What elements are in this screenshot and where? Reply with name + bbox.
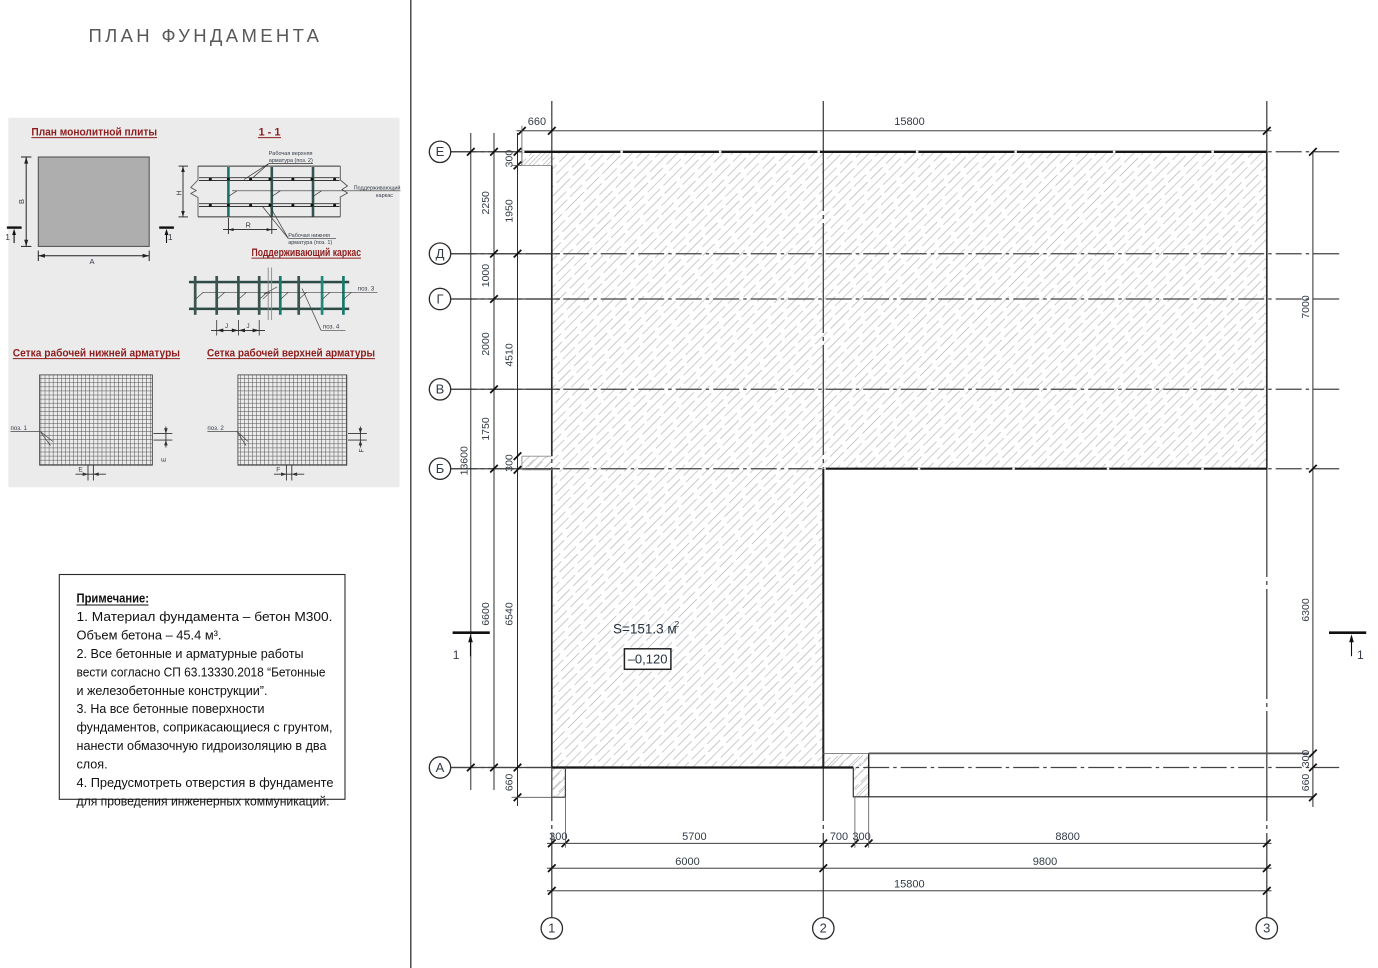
svg-text:15800: 15800 — [894, 116, 925, 128]
svg-text:1000: 1000 — [480, 264, 492, 288]
svg-text:J: J — [225, 323, 228, 330]
svg-text:700: 700 — [830, 831, 848, 843]
svg-text:1: 1 — [548, 921, 555, 936]
svg-text:1. Материал фундамента – бетон: 1. Материал фундамента – бетон М300. — [77, 610, 333, 624]
svg-text:1750: 1750 — [480, 417, 492, 441]
svg-text:H: H — [177, 190, 184, 195]
svg-text:15800: 15800 — [894, 879, 925, 891]
svg-text:2. Все бетонные и арматурные р: 2. Все бетонные и арматурные работы — [77, 647, 304, 661]
svg-text:2250: 2250 — [480, 191, 492, 215]
svg-text:1: 1 — [1357, 648, 1364, 662]
svg-text:Рабочая нижняя: Рабочая нижняя — [288, 233, 330, 239]
svg-text:F: F — [276, 467, 280, 474]
svg-text:1: 1 — [168, 232, 173, 242]
svg-text:вести согласно СП 63.13330.201: вести согласно СП 63.13330.2018 “Бетонны… — [77, 665, 326, 679]
svg-text:каркас: каркас — [376, 193, 393, 199]
svg-text:300: 300 — [504, 454, 516, 472]
svg-text:А: А — [436, 760, 445, 775]
svg-text:300: 300 — [1300, 750, 1312, 768]
svg-text:F: F — [359, 448, 366, 452]
svg-text:фундаментов, соприкасающиеся с: фундаментов, соприкасающиеся с грунтом, — [77, 721, 333, 735]
svg-text:S=151.3 м: S=151.3 м — [613, 622, 677, 637]
svg-text:E: E — [78, 467, 83, 474]
svg-text:13600: 13600 — [458, 446, 470, 475]
svg-text:9800: 9800 — [1033, 856, 1057, 868]
svg-text:6000: 6000 — [675, 856, 699, 868]
svg-text:Объем бетона – 45.4 м³.: Объем бетона – 45.4 м³. — [77, 628, 222, 642]
svg-text:J: J — [246, 323, 249, 330]
svg-text:1: 1 — [453, 648, 460, 662]
svg-text:R: R — [245, 221, 251, 230]
svg-text:Е: Е — [436, 144, 445, 159]
svg-text:B: B — [17, 199, 26, 204]
svg-text:поз. 2: поз. 2 — [207, 425, 224, 432]
svg-text:300: 300 — [504, 150, 516, 168]
svg-text:Сетка рабочей верхней арматуры: Сетка рабочей верхней арматуры — [207, 347, 375, 359]
svg-text:2000: 2000 — [480, 332, 492, 356]
svg-text:E: E — [161, 457, 168, 462]
svg-text:1: 1 — [5, 232, 10, 242]
svg-text:5700: 5700 — [682, 831, 706, 843]
svg-text:В: В — [436, 382, 445, 397]
svg-text:План монолитной плиты: План монолитной плиты — [31, 126, 157, 138]
svg-text:Д: Д — [436, 246, 445, 261]
svg-text:Б: Б — [436, 461, 445, 476]
svg-text:Рабочая верхняя: Рабочая верхняя — [269, 151, 313, 157]
svg-text:ПЛАН ФУНДАМЕНТА: ПЛАН ФУНДАМЕНТА — [89, 25, 320, 46]
svg-text:1950: 1950 — [504, 199, 516, 223]
svg-text:660: 660 — [1300, 774, 1312, 792]
svg-text:Поддерживающий: Поддерживающий — [354, 185, 401, 192]
svg-text:поз. 4: поз. 4 — [323, 324, 340, 331]
svg-text:A: A — [89, 257, 94, 266]
svg-text:660: 660 — [504, 773, 516, 791]
svg-text:поз. 1: поз. 1 — [11, 425, 28, 432]
svg-text:6600: 6600 — [480, 602, 492, 626]
svg-text:3. На все бетонные поверхности: 3. На все бетонные поверхности — [77, 702, 265, 716]
svg-text:поз. 3: поз. 3 — [358, 286, 375, 293]
svg-text:2: 2 — [675, 619, 680, 629]
svg-text:300: 300 — [549, 831, 567, 843]
svg-text:арматура (поз. 1): арматура (поз. 1) — [288, 240, 332, 246]
svg-text:4510: 4510 — [504, 343, 516, 367]
svg-text:Примечание:: Примечание: — [77, 591, 150, 606]
svg-text:6300: 6300 — [1300, 598, 1312, 622]
svg-text:нанести обмазочную гидроизоляц: нанести обмазочную гидроизоляцию в два — [77, 739, 327, 753]
svg-text:6540: 6540 — [504, 602, 516, 626]
svg-text:Сетка рабочей нижней арматуры: Сетка рабочей нижней арматуры — [13, 347, 180, 359]
svg-text:4. Предусмотреть отверстия в ф: 4. Предусмотреть отверстия в фундаменте — [77, 776, 334, 790]
svg-text:1 - 1: 1 - 1 — [258, 126, 280, 138]
svg-text:для проведения инженерных комм: для проведения инженерных коммуникаций. — [77, 794, 330, 808]
svg-text:и железобетонные конструкции”.: и железобетонные конструкции”. — [77, 684, 268, 698]
svg-text:3: 3 — [1263, 921, 1270, 936]
svg-text:–0,120: –0,120 — [628, 652, 668, 667]
svg-text:7000: 7000 — [1300, 295, 1312, 319]
svg-text:8800: 8800 — [1055, 831, 1079, 843]
svg-text:Г: Г — [436, 291, 443, 306]
svg-text:660: 660 — [528, 116, 546, 128]
svg-text:2: 2 — [820, 921, 827, 936]
svg-text:слоя.: слоя. — [77, 758, 108, 772]
svg-text:Поддерживающий каркас: Поддерживающий каркас — [252, 247, 362, 259]
